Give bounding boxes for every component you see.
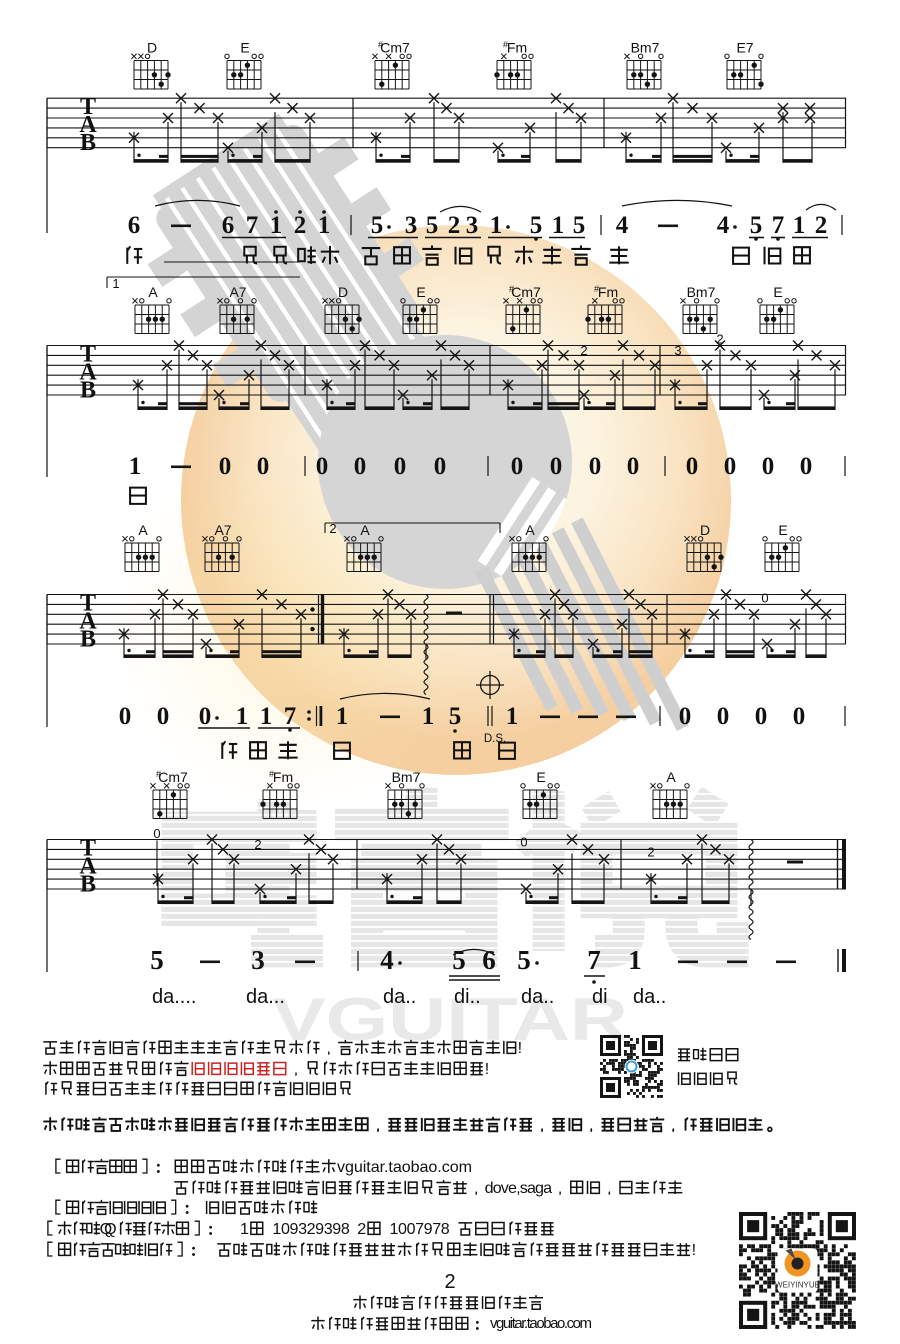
svg-text:1: 1 [552, 212, 565, 239]
svg-text:!: ! [518, 1039, 522, 1057]
svg-text:Fm: Fm [273, 769, 293, 785]
svg-text:4: 4 [616, 212, 629, 239]
svg-text:2: 2 [357, 1220, 366, 1238]
svg-text:da..: da.. [521, 986, 554, 1008]
svg-text:2: 2 [647, 845, 654, 860]
svg-text:Fm: Fm [507, 40, 527, 56]
svg-text:0: 0 [755, 703, 768, 730]
svg-text:WEIYINYUE: WEIYINYUE [775, 1281, 820, 1290]
svg-text:E: E [240, 40, 249, 56]
svg-text:0: 0 [434, 453, 447, 480]
svg-text:1: 1 [506, 703, 519, 730]
svg-text:1: 1 [112, 276, 119, 291]
svg-text:109329398: 109329398 [272, 1220, 349, 1238]
svg-text:5: 5 [371, 212, 384, 239]
svg-text:!: ! [692, 1241, 696, 1259]
svg-text:0: 0 [219, 453, 232, 480]
svg-text:QQ: QQ [100, 1220, 117, 1238]
svg-text:2: 2 [448, 212, 461, 239]
svg-text:A7: A7 [229, 284, 246, 300]
svg-text:da....: da.... [152, 986, 196, 1008]
svg-text:0: 0 [589, 453, 602, 480]
svg-text:0: 0 [199, 703, 212, 730]
svg-text:7: 7 [284, 703, 297, 730]
svg-text:Bm7: Bm7 [631, 40, 660, 56]
svg-text:2: 2 [254, 837, 261, 852]
svg-text:D: D [700, 522, 710, 538]
svg-text:0: 0 [679, 703, 692, 730]
svg-text:da..: da.. [633, 986, 666, 1008]
svg-text:0: 0 [520, 835, 527, 850]
svg-text:6: 6 [222, 212, 235, 239]
svg-text:2: 2 [444, 1271, 455, 1293]
svg-text:1: 1 [318, 212, 331, 239]
svg-text:1: 1 [129, 453, 142, 480]
svg-text:da...: da... [246, 986, 285, 1008]
svg-text:B: B [80, 627, 96, 653]
svg-text:2: 2 [329, 521, 336, 536]
svg-text:A: A [148, 284, 158, 300]
svg-text:E: E [778, 522, 787, 538]
svg-text:0: 0 [550, 453, 563, 480]
svg-text:D: D [338, 284, 348, 300]
svg-text:0: 0 [119, 703, 132, 730]
svg-text:5: 5 [452, 945, 466, 975]
svg-text:A: A [360, 522, 370, 538]
svg-text:0: 0 [717, 703, 730, 730]
svg-text:vguitar.taobao.com: vguitar.taobao.com [337, 1158, 472, 1176]
svg-text:2: 2 [294, 212, 307, 239]
svg-text:0: 0 [257, 453, 270, 480]
svg-text:5: 5 [750, 212, 763, 239]
svg-text:3: 3 [251, 945, 265, 975]
svg-text:B: B [80, 378, 96, 404]
svg-text:Fm: Fm [598, 284, 618, 300]
svg-text:1: 1 [336, 703, 349, 730]
svg-text:VGUITAR: VGUITAR [272, 986, 628, 1053]
svg-text:0: 0 [627, 453, 640, 480]
svg-text:6: 6 [128, 212, 141, 239]
svg-text:E: E [773, 284, 782, 300]
svg-text:1: 1 [422, 703, 435, 730]
svg-text:A: A [138, 522, 148, 538]
svg-text:7: 7 [587, 945, 601, 975]
svg-text:5: 5 [573, 212, 586, 239]
svg-text:3: 3 [674, 343, 681, 358]
svg-text:E7: E7 [736, 40, 753, 56]
svg-text:2: 2 [580, 343, 587, 358]
svg-text:2: 2 [815, 212, 828, 239]
svg-text:1: 1 [260, 703, 273, 730]
svg-text:1: 1 [793, 212, 806, 239]
svg-text:A: A [666, 769, 676, 785]
svg-text:Cm7: Cm7 [380, 40, 410, 56]
svg-text:1: 1 [270, 212, 283, 239]
svg-text:0: 0 [511, 453, 524, 480]
svg-text:di..: di.. [454, 986, 481, 1008]
svg-text:1: 1 [490, 212, 503, 239]
svg-text:A7: A7 [214, 522, 231, 538]
svg-text:Cm7: Cm7 [511, 284, 541, 300]
svg-text:!: ! [485, 1060, 489, 1078]
svg-text:7: 7 [246, 212, 259, 239]
svg-text:Bm7: Bm7 [687, 284, 716, 300]
svg-text:5: 5 [449, 703, 462, 730]
svg-text:0: 0 [316, 453, 329, 480]
svg-text:5: 5 [426, 212, 439, 239]
svg-text:4: 4 [717, 212, 730, 239]
svg-text:E: E [416, 284, 425, 300]
svg-text:5: 5 [530, 212, 543, 239]
svg-text:5: 5 [517, 945, 531, 975]
svg-text:B: B [80, 130, 96, 156]
svg-text:5: 5 [150, 945, 164, 975]
svg-text:da..: da.. [383, 986, 416, 1008]
svg-text:0: 0 [724, 453, 737, 480]
svg-text:0: 0 [800, 453, 813, 480]
svg-text:di: di [592, 986, 608, 1008]
svg-text:0: 0 [394, 453, 407, 480]
svg-text:7: 7 [772, 212, 785, 239]
svg-text:vguitar.taobao.com: vguitar.taobao.com [490, 1315, 592, 1332]
svg-text:1007978: 1007978 [390, 1220, 450, 1238]
svg-text:4: 4 [380, 945, 394, 975]
svg-text:B: B [80, 872, 96, 898]
svg-text:3: 3 [466, 212, 479, 239]
svg-text:1: 1 [236, 703, 249, 730]
svg-text:2: 2 [716, 332, 723, 347]
svg-text:6: 6 [482, 945, 496, 975]
svg-text:0: 0 [153, 826, 160, 841]
svg-text:1: 1 [628, 945, 642, 975]
svg-text:3: 3 [405, 212, 418, 239]
svg-text:1: 1 [240, 1220, 249, 1238]
svg-text:Bm7: Bm7 [392, 769, 421, 785]
svg-text:0: 0 [762, 453, 775, 480]
svg-text:0: 0 [761, 591, 768, 606]
svg-text:0: 0 [793, 703, 806, 730]
svg-text:D: D [147, 40, 157, 56]
svg-text:E: E [536, 769, 545, 785]
svg-text:0: 0 [157, 703, 170, 730]
svg-text:0: 0 [686, 453, 699, 480]
svg-text:Cm7: Cm7 [158, 769, 188, 785]
svg-text:A: A [525, 522, 535, 538]
svg-text:dove,saga: dove,saga [485, 1179, 553, 1197]
svg-text:0: 0 [354, 453, 367, 480]
